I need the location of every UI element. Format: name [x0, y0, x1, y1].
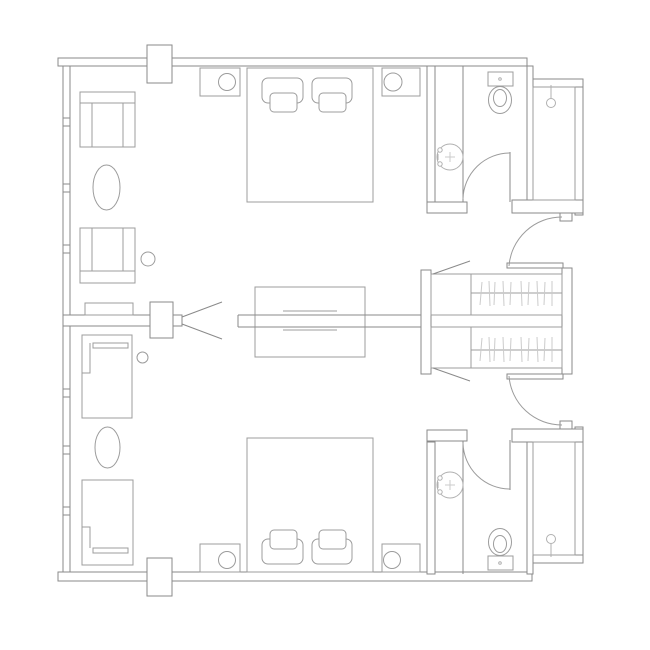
bottom-shower-head-icon: [547, 535, 556, 544]
top-bathroom-door-arc: [463, 153, 510, 199]
bottom-shower-right-wall: [575, 427, 583, 555]
top-shower-head-icon: [547, 99, 556, 108]
floor-plan-drawing: [0, 0, 650, 650]
bottom-exterior-wall: [58, 572, 532, 581]
top-wall-column: [147, 45, 172, 83]
side-table-bottom-room: [137, 352, 148, 363]
middle-partition-wall: [63, 315, 150, 326]
closet-bottom-box: [431, 327, 562, 368]
top-bathroom-wall-cap: [427, 202, 467, 213]
connecting-door-swing-line: [182, 324, 222, 339]
top-sink-faucet-knob: [438, 148, 442, 152]
top-shower-left-wall: [527, 66, 533, 200]
floor-plan-canvas: [0, 0, 650, 650]
top-bathroom-bottom-wall: [512, 200, 583, 213]
oval-table-top-room: [93, 165, 120, 210]
side-table-top-room: [141, 252, 155, 266]
bottom-bed-pillow-small: [319, 530, 346, 549]
closet-top-door-diagonal: [433, 261, 470, 274]
chaise-lower-cushion: [93, 548, 128, 553]
bottom-wall-column: [147, 558, 172, 596]
top-bed-pillow-small: [319, 93, 346, 112]
lamp-bottom-right: [384, 552, 401, 569]
bottom-sink-faucet-knob: [438, 490, 442, 494]
oval-table-bottom-room: [95, 427, 120, 468]
bottom-toilet-bowl: [489, 529, 512, 556]
top-bathroom-wall: [427, 66, 435, 202]
closet-right-wall: [562, 268, 572, 374]
bottom-bathroom-door-arc: [463, 443, 510, 489]
armchair-upper: [80, 92, 135, 147]
closet-left-wall: [421, 270, 431, 374]
top-shower-right-wall: [575, 87, 583, 215]
top-toilet-bowl: [489, 87, 512, 114]
bottom-shower-bottom-wall: [533, 555, 583, 563]
bottom-entry-door-leaf: [507, 374, 563, 379]
middle-pier-tab: [173, 315, 182, 326]
top-exterior-wall: [58, 58, 527, 66]
bottom-bed-pillow-small: [270, 530, 297, 549]
bottom-sink-faucet-knob: [438, 476, 442, 480]
bottom-bathroom-top-wall: [512, 429, 583, 442]
top-entry-door-leaf: [507, 263, 563, 268]
bottom-entry-door-arc: [509, 376, 562, 425]
lamp-bottom-left: [219, 552, 236, 569]
top-shower-top-wall: [533, 79, 583, 87]
top-sink-faucet-knob: [438, 162, 442, 166]
closet-top-box: [431, 274, 562, 315]
closet-bottom-door-diagonal: [433, 368, 470, 381]
top-toilet-tank: [488, 72, 513, 86]
middle-pier: [150, 302, 173, 338]
console-table: [85, 303, 133, 315]
connecting-door-swing-line: [182, 302, 222, 317]
chaise-upper-cushion: [93, 343, 128, 348]
bottom-shower-left-wall: [527, 442, 533, 574]
lamp-top-right: [384, 73, 402, 91]
top-bed-pillow-small: [270, 93, 297, 112]
bottom-bathroom-wall-cap: [427, 430, 467, 441]
armchair-lower: [80, 228, 135, 283]
bottom-toilet-tank: [488, 556, 513, 570]
top-entry-door-arc: [509, 217, 562, 266]
shared-desk: [255, 287, 365, 357]
bottom-bathroom-wall: [427, 442, 435, 574]
lamp-top-left: [219, 74, 236, 91]
